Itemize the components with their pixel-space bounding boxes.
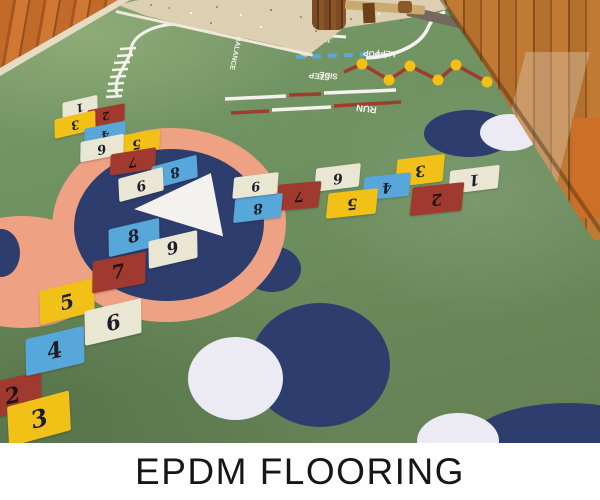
wooden-post: [312, 0, 346, 30]
balance-label: BALANCE: [228, 36, 242, 71]
sand-specks: [150, 4, 152, 6]
caption-title: EPDM FLOORING: [135, 451, 465, 493]
epdm-flooring-ad: 1 2 3 4 5 6 7 8 9 1 2 3 4 5 6 7 8 9 2 3 …: [0, 0, 600, 500]
wooden-post-small: [362, 3, 375, 24]
playground-photo: 1 2 3 4 5 6 7 8 9 1 2 3 4 5 6 7 8 9 2 3 …: [0, 0, 600, 443]
bright-wood-panel: [572, 118, 600, 218]
caption-band: EPDM FLOORING: [0, 443, 600, 500]
wooden-post-small: [398, 1, 412, 13]
